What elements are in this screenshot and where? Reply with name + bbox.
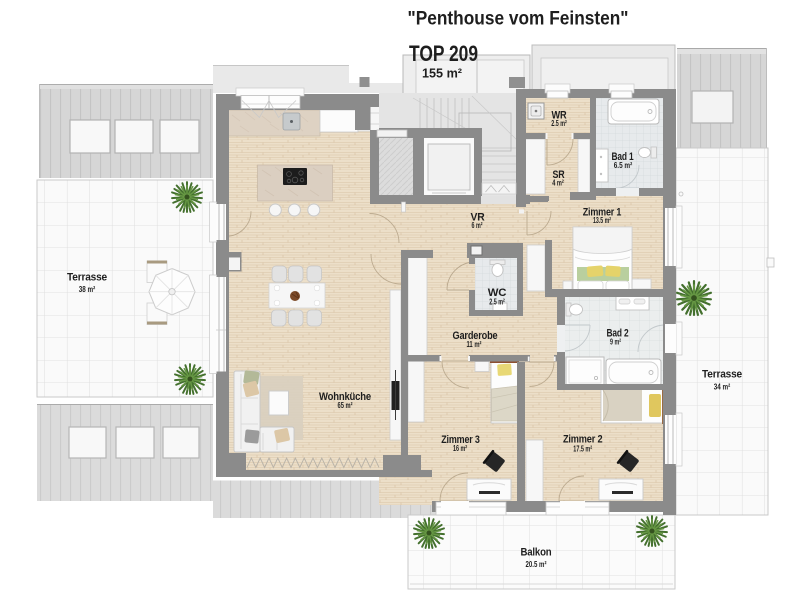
svg-text:Terrasse: Terrasse: [702, 369, 742, 381]
svg-text:Terrasse: Terrasse: [67, 272, 107, 284]
svg-text:2.5 m²: 2.5 m²: [551, 119, 567, 128]
svg-text:6.5 m²: 6.5 m²: [614, 161, 633, 170]
svg-text:2.5 m²: 2.5 m²: [489, 298, 505, 307]
svg-text:11 m²: 11 m²: [467, 340, 482, 349]
svg-text:6 m²: 6 m²: [472, 221, 483, 230]
svg-text:65 m²: 65 m²: [338, 401, 353, 410]
svg-text:155 m²: 155 m²: [422, 66, 463, 81]
svg-text:9 m²: 9 m²: [610, 338, 621, 347]
svg-text:38 m²: 38 m²: [79, 285, 96, 294]
svg-text:Balkon: Balkon: [521, 547, 552, 559]
svg-text:20.5 m²: 20.5 m²: [526, 560, 547, 569]
svg-text:13.5 m²: 13.5 m²: [593, 216, 611, 225]
svg-text:"Penthouse vom Feinsten": "Penthouse vom Feinsten": [408, 8, 629, 30]
svg-text:TOP 209: TOP 209: [409, 41, 478, 66]
svg-text:34 m²: 34 m²: [714, 383, 731, 392]
svg-text:17.5 m²: 17.5 m²: [573, 444, 592, 453]
svg-text:4 m²: 4 m²: [552, 178, 564, 187]
svg-text:16 m²: 16 m²: [453, 444, 467, 453]
